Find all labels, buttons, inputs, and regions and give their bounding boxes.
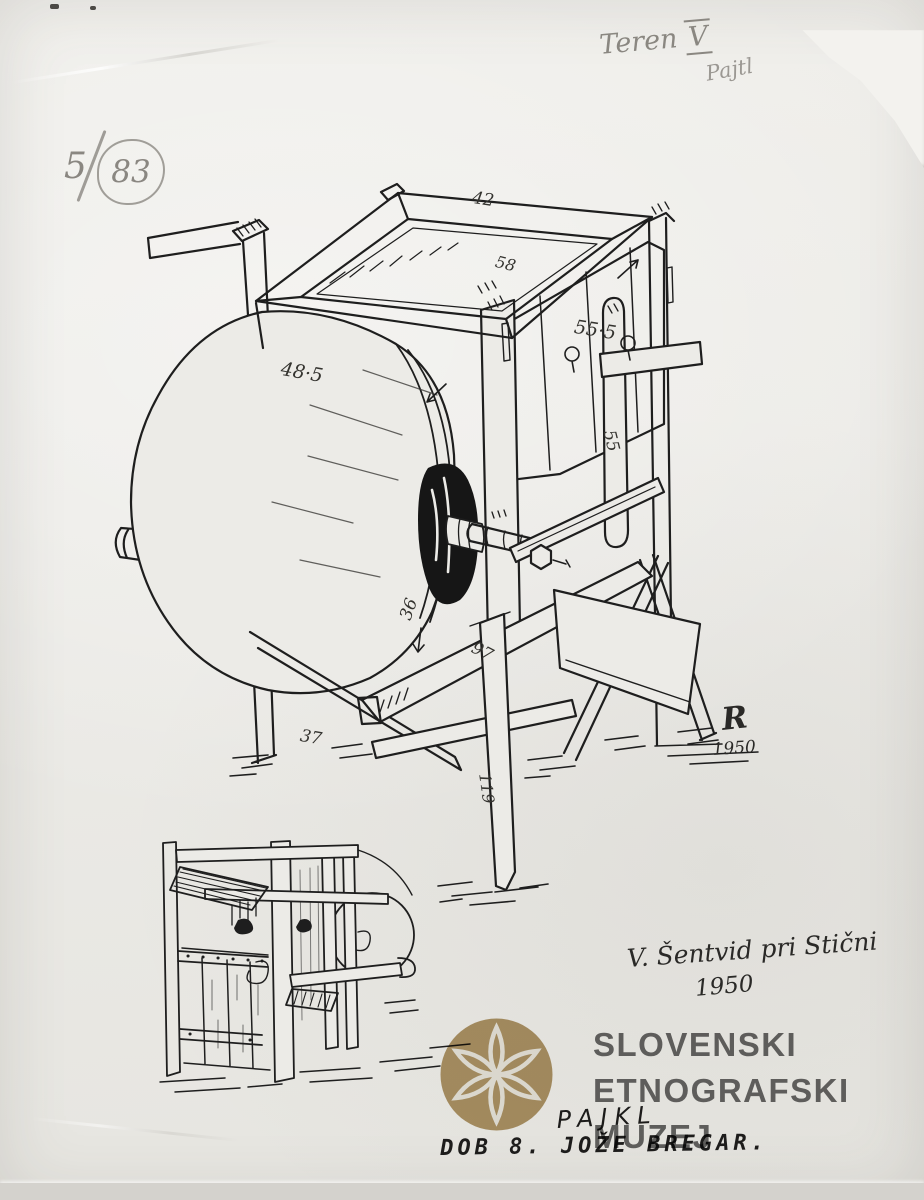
six-petal-flower-icon [440,1018,553,1131]
measurement-base: 37 [299,726,324,749]
museum-watermark-text: SLOVENSKI ETNOGRAFSKI MUZEJ [593,1022,850,1160]
museum-logo [440,1018,553,1135]
signature-year: 1950 [712,737,757,760]
measurement-front-leg: 119 [475,772,498,805]
discharge-chute [554,590,700,714]
field-note-numeral: V [684,18,712,55]
measurement-hopper-top: 42 [471,188,496,211]
watermark-line1: SLOVENSKI [593,1022,850,1068]
location-year: 1950 [694,971,755,1002]
inventory-number: 83 [111,154,150,190]
watermark-line3: MUZEJ [593,1114,850,1160]
clamp-beam [510,478,664,569]
signature-initial: R [720,699,749,737]
watermark-line2: ETNOGRAFSKI [593,1068,850,1114]
scanned-document: 5 83 TerenV Pajtl 42 58 55·5 48·5 55 36 … [0,0,924,1200]
front-plank [481,296,520,638]
small-drawing [160,841,470,1092]
field-note-word: Teren [598,23,679,61]
